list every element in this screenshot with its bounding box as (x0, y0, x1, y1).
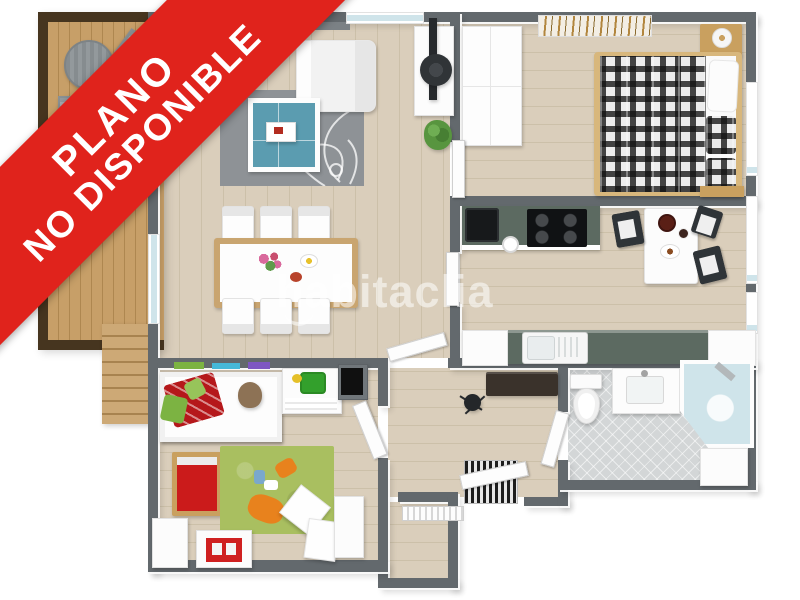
vanity-faucet (641, 370, 648, 377)
plate-of-food (660, 244, 680, 259)
wall-kids-right-a (378, 358, 388, 406)
living-window (346, 12, 424, 24)
dining-chair (222, 298, 254, 334)
bed-pillow-plaid (706, 116, 736, 154)
toddler-bed (172, 452, 222, 516)
wall-shelf-green (174, 362, 204, 369)
coffee-pot (658, 214, 676, 232)
staircase (102, 324, 150, 424)
bed-end-bench (700, 186, 744, 197)
bedroom-door (452, 140, 465, 198)
sink-drainboard (558, 337, 582, 357)
toy-pot-green (300, 372, 326, 394)
wall-bath-left-a (558, 368, 568, 412)
wall-art (538, 15, 652, 37)
toy-box-sticker (226, 543, 236, 555)
washing-machine (700, 448, 748, 486)
wall-storage-top (398, 492, 448, 502)
wall-shelf-blue (212, 363, 240, 369)
espresso-cup (678, 228, 689, 239)
dining-chair (222, 206, 254, 242)
dining-chair (298, 206, 330, 242)
floorplan-render: habitaclia PLANO NO DISPONIBLE (0, 0, 800, 600)
bedroom-window (746, 82, 758, 176)
toy-white (264, 480, 278, 490)
bedside-lamp (712, 28, 732, 48)
watermark-swoosh (284, 310, 314, 326)
radiator (402, 506, 464, 521)
bed-pillow-white (707, 59, 740, 112)
dining-chair (260, 206, 292, 242)
sink-basin (527, 336, 555, 360)
mug (502, 236, 519, 253)
toy-box-sticker (212, 543, 222, 555)
kitchen-window-a (746, 196, 758, 284)
toilet-tank (570, 374, 602, 389)
kitchen-chair (611, 210, 644, 248)
potted-plant (424, 120, 452, 150)
wall-storage-bottom (378, 578, 458, 588)
kitchen-window-b (746, 292, 758, 334)
changing-table-shelves (285, 398, 337, 410)
plaid-blanket (600, 56, 706, 192)
desk-chair (420, 54, 452, 86)
sideboard (486, 372, 558, 396)
teddy-bear (238, 382, 262, 408)
coat-stand (464, 394, 481, 411)
counter-cabinet (462, 330, 508, 366)
wall-bedroom-kitchen (460, 196, 756, 206)
wall-shelf-purple (248, 362, 270, 369)
toy-duck-yellow (292, 374, 302, 383)
cooktop (527, 209, 587, 247)
coffee-machine (465, 208, 499, 242)
kids-cabinet-right (334, 496, 364, 558)
vanity-sink (626, 376, 664, 404)
tv-screen (341, 368, 363, 395)
wardrobe (462, 26, 522, 146)
wall-center-b (450, 196, 460, 252)
habitaclia-watermark: habitaclia (276, 266, 556, 326)
kids-cabinet-left (152, 518, 188, 568)
tray-magazine (274, 127, 283, 134)
terrace-door (148, 234, 160, 324)
